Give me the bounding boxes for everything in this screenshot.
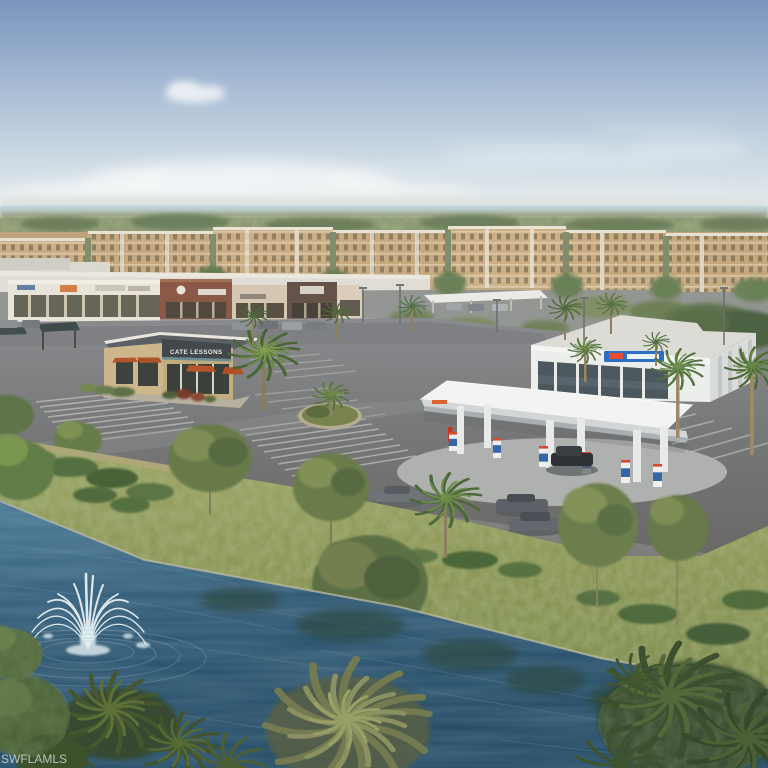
svg-text:SWFLAMLS: SWFLAMLS: [1, 752, 67, 766]
svg-text:CATE LESSONS: CATE LESSONS: [170, 349, 222, 356]
